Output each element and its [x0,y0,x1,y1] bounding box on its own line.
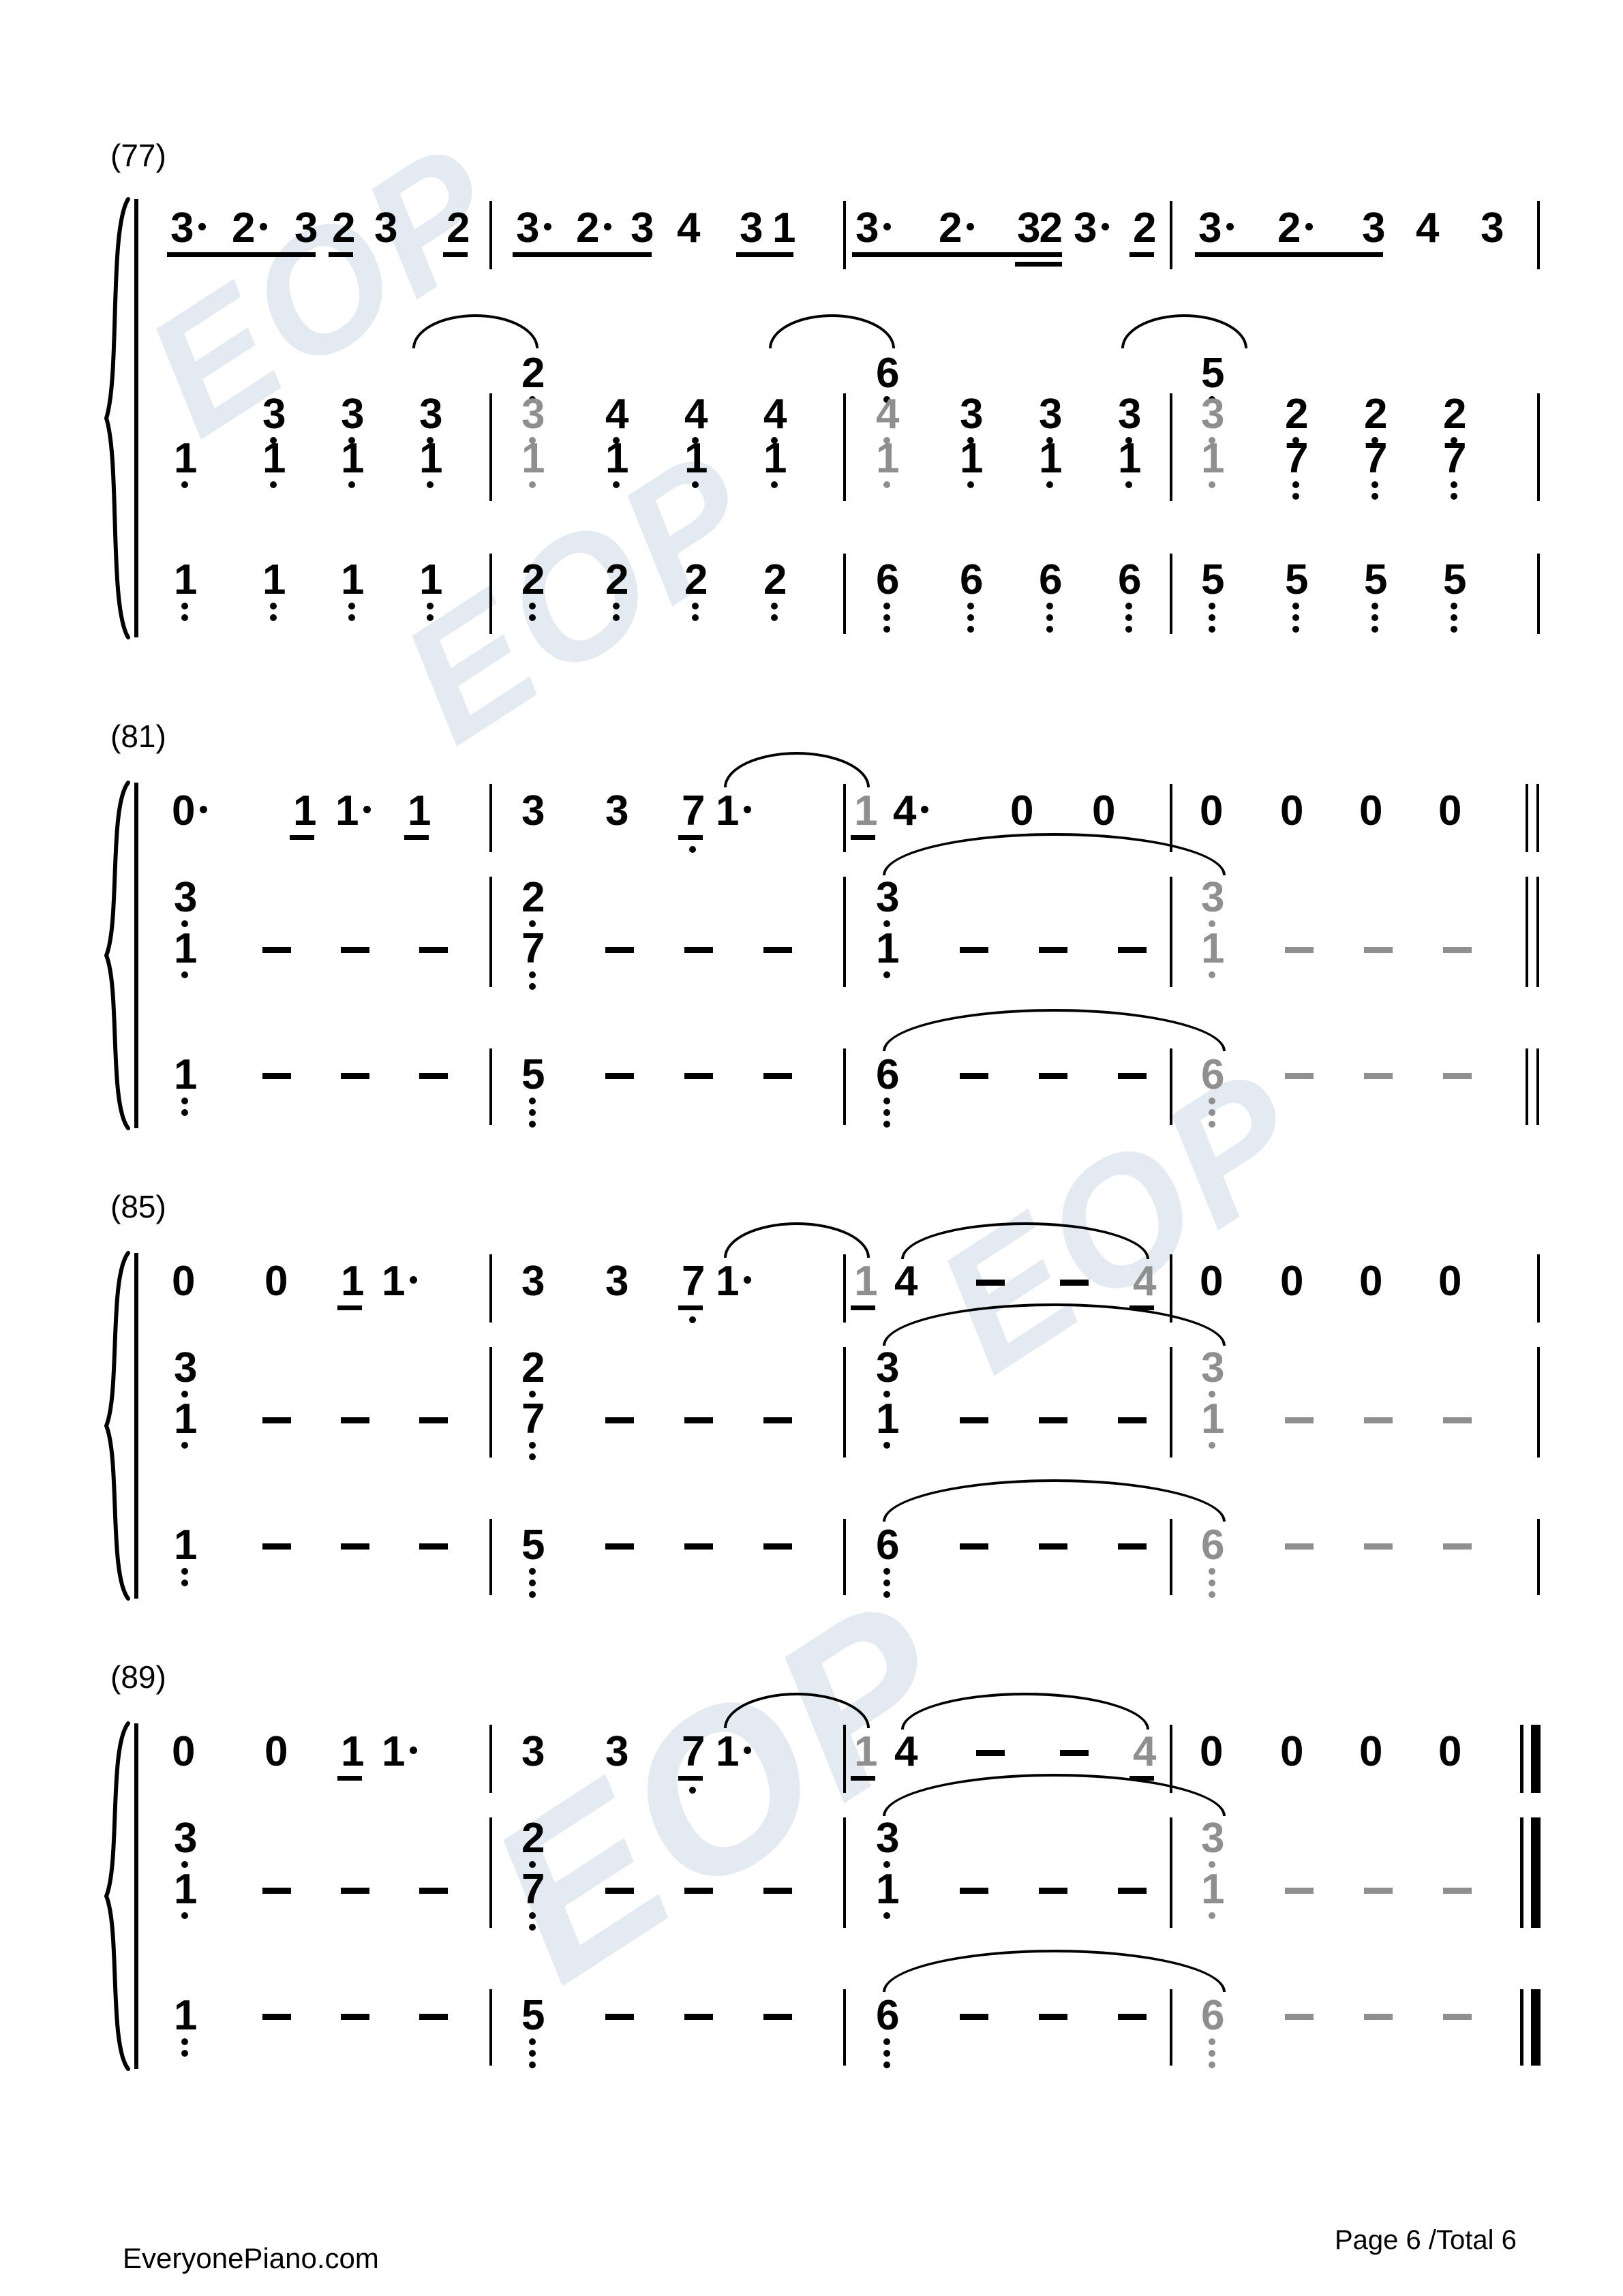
augmentation-dot [200,806,207,813]
barline [843,1519,846,1595]
octave-dot [529,2061,536,2068]
octave-dot [529,1121,536,1128]
sustain-dash [419,1073,448,1079]
octave-dot [1292,614,1299,621]
note-number: 1 [876,1402,898,1436]
sustain-dash [1039,1417,1067,1423]
barline [843,1989,846,2066]
augmentation-dot [198,223,206,230]
note-number: 3 [1198,211,1220,245]
note-number: 3 [960,397,982,432]
octave-dot [181,1098,188,1104]
rest-note: 0 [264,1735,286,1769]
sustain-dash [763,1888,792,1894]
sustain-dash [1364,1888,1393,1894]
note-number: 3 [631,211,652,245]
sustain-dash [262,1073,291,1079]
octave-dot [529,1098,536,1104]
note-number: 2 [332,211,354,245]
sustain-dash [262,2014,291,2020]
octave-dot [1451,603,1457,609]
note-number: 6 [1201,1528,1223,1562]
note-number: 1 [1201,932,1223,966]
augmentation-dot [921,806,928,813]
sustain-dash [1118,947,1147,953]
octave-dot [883,626,890,633]
sustain-dash [684,947,713,953]
note-number: 6 [876,1058,898,1092]
augmentation-dot [410,1747,417,1754]
note-number: 2 [1277,211,1299,245]
sustain-dash [1039,1073,1067,1079]
barline [1170,1048,1172,1125]
note-number: 5 [521,1999,543,2033]
octave-dot [1209,1912,1215,1919]
note-number: 2 [939,211,960,245]
tie-arc [724,752,870,787]
note-number: 1 [382,1265,404,1299]
barline [489,1347,492,1457]
sustain-dash [1118,1417,1147,1423]
sustain-dash [976,1750,1005,1756]
sustain-dash [1364,1543,1393,1550]
rest-note: 0 [264,1265,286,1299]
note-number: 5 [1443,563,1465,597]
sustain-dash [763,1543,792,1550]
note-number: 2 [684,563,706,597]
note-number: 3 [521,1735,543,1769]
augmentation-dot [410,1276,417,1284]
note-number: 1 [1039,442,1061,476]
note-number: 3 [521,397,543,432]
barline [489,1519,492,1595]
system-start-barline [134,199,138,637]
note-number: 1 [716,1265,738,1299]
sustain-dash [1443,1417,1472,1423]
tie-arc [883,833,1226,875]
note-number: 3 [855,211,877,245]
sustain-dash [1039,1888,1067,1894]
note-number: 1 [1201,1402,1223,1436]
augmentation-dot [363,806,371,813]
rest-note: 0 [1200,1735,1222,1769]
augmentation-dot [744,806,751,813]
sustain-dash [1118,2014,1147,2020]
octave-dot [270,603,277,609]
note-number: 3 [876,1351,898,1385]
sustain-dash [341,2014,369,2020]
barline [843,393,846,501]
beam-underline [513,252,652,257]
beam-underline [1129,252,1154,257]
barline [1170,877,1172,987]
note-number: 2 [521,1351,543,1385]
octave-dot [1371,603,1378,609]
octave-dot [883,2050,890,2057]
barline [843,554,846,634]
octave-dot [883,971,890,978]
sustain-dash [1443,1888,1472,1894]
sustain-dash [684,2014,713,2020]
sustain-dash [1285,1543,1314,1550]
note-number: 1 [293,794,315,828]
beam-underline [678,1776,703,1781]
barline [1170,201,1172,269]
octave-dot [967,614,974,621]
note-number: 7 [682,1735,703,1769]
beam-underline [851,835,875,840]
note-number: 4 [876,397,898,432]
note-number: 1 [335,794,357,828]
augmentation-dot [744,1276,751,1284]
note-number: 1 [174,442,196,476]
note-number: 3 [876,881,898,915]
note-number: 2 [605,563,627,597]
sustain-dash [1285,2014,1314,2020]
rest-note: 0 [1280,1735,1302,1769]
octave-dot [529,1580,536,1586]
note-number: 3 [170,211,192,245]
note-number: 7 [521,1873,543,1907]
octave-dot [529,1453,536,1460]
sustain-dash [1364,947,1393,953]
note-number: 3 [341,397,363,432]
octave-dot [1209,1591,1215,1598]
grand-staff-brace [97,1723,138,2069]
note-number: 4 [893,794,915,828]
octave-dot [181,481,188,488]
octave-dot [883,2061,890,2068]
note-number: 1 [262,442,284,476]
rest-note: 0 [1010,794,1032,828]
augmentation-dot [967,223,974,230]
octave-dot [883,1912,890,1919]
note-number: 6 [876,563,898,597]
note-number: 5 [521,1528,543,1562]
beam-underline [404,835,429,840]
note-number: 1 [854,1265,876,1299]
octave-dot [883,1442,890,1449]
note-number: 4 [763,397,785,432]
beam-underline [851,1776,875,1781]
octave-dot [1451,614,1457,621]
octave-dot [1451,493,1457,500]
note-number: 3 [374,211,396,245]
note-number: 1 [341,563,363,597]
octave-dot [883,1568,890,1575]
sustain-dash [1285,947,1314,953]
measure-number-label: (85) [110,1191,166,1222]
grand-staff-brace [97,1253,138,1599]
sustain-dash [684,1073,713,1079]
note-number: 1 [854,1735,876,1769]
sustain-dash [605,1417,634,1423]
tie-arc [1121,314,1247,348]
note-number: 5 [1285,563,1307,597]
note-number: 4 [677,211,699,245]
rest-note: 0 [1438,794,1460,828]
octave-dot [1209,1580,1215,1586]
barline [843,201,846,269]
note-number: 1 [341,1265,363,1299]
system-start-barline [134,1723,138,2069]
octave-dot [348,481,355,488]
beam-underline [852,252,1062,257]
note-number: 4 [684,397,706,432]
note-number: 1 [174,1402,196,1436]
sustain-dash [605,2014,634,2020]
note-number: 1 [1201,1873,1223,1907]
augmentation-dot [544,223,551,230]
sustain-dash [341,947,369,953]
octave-dot [771,481,778,488]
octave-dot [967,603,974,609]
note-number: 6 [876,1999,898,2033]
note-number: 2 [521,357,543,391]
octave-dot [1046,614,1053,621]
note-number: 4 [894,1265,916,1299]
sustain-dash [605,1543,634,1550]
barline [843,1347,846,1457]
augmentation-dot [1102,223,1109,230]
note-number: 3 [262,397,284,432]
watermark-eop: EOP [120,116,528,464]
note-number: 6 [876,1528,898,1562]
barline [843,1725,846,1793]
sustain-dash [1443,2014,1472,2020]
note-number: 3 [419,397,441,432]
note-number: 1 [876,932,898,966]
note-number: 1 [763,442,785,476]
octave-dot [1292,493,1299,500]
rest-note: 0 [1359,1735,1381,1769]
sustain-dash [341,1073,369,1079]
octave-dot [1292,603,1299,609]
beam-underline [1195,252,1383,257]
sustain-dash [1443,947,1472,953]
barline [1537,554,1540,634]
note-number: 4 [894,1735,916,1769]
note-number: 3 [1362,211,1384,245]
note-number: 6 [960,563,982,597]
note-number: 2 [521,881,543,915]
tie-arc [883,1950,1226,1992]
octave-dot [181,614,188,621]
note-number: 3 [521,794,543,828]
barline [843,877,846,987]
octave-dot [1209,2050,1215,2057]
watermark-eop: EOP [910,1040,1334,1401]
octave-dot [1125,626,1132,633]
barline [1170,1347,1172,1457]
octave-dot [427,481,434,488]
measure-number-label: (81) [110,721,166,752]
barline [1170,1519,1172,1595]
footer-site-text: EveryonePiano.com [123,2244,379,2273]
octave-dot [883,1121,890,1128]
note-number: 1 [772,211,794,245]
sheet-music-page: EveryonePiano.com Page 6 /Total 6 EOPEOP… [0,0,1623,2296]
note-number: 7 [1364,442,1386,476]
sustain-dash [1118,1073,1147,1079]
octave-dot [529,1591,536,1598]
footer-page-indicator: Page 6 /Total 6 [1335,2226,1517,2254]
note-number: 4 [605,397,627,432]
note-number: 3 [174,881,196,915]
barline [1537,393,1540,501]
note-number: 6 [876,357,898,391]
barline [843,784,846,852]
sustain-dash [960,947,988,953]
barline [1526,877,1528,987]
octave-dot [1125,614,1132,621]
octave-dot [1371,626,1378,633]
sustain-dash [684,1417,713,1423]
augmentation-dot [883,223,891,230]
octave-dot [529,2038,536,2045]
note-number: 1 [341,442,363,476]
barline [1536,877,1539,987]
sustain-dash [976,1280,1005,1286]
octave-dot [348,603,355,609]
barline [1170,784,1172,852]
octave-dot [1371,481,1378,488]
octave-dot [883,1580,890,1586]
note-number: 2 [521,563,543,597]
note-number: 3 [1074,211,1095,245]
barline [1170,1817,1172,1928]
barline [1531,1989,1541,2066]
beam-underline [167,252,316,257]
beam-underline [337,1305,362,1310]
octave-dot [1209,603,1215,609]
note-number: 7 [682,794,703,828]
beam-underline [678,1305,703,1310]
octave-dot [1209,1568,1215,1575]
octave-dot [883,1098,890,1104]
barline [489,201,492,269]
note-number: 3 [1039,397,1061,432]
note-number: 1 [876,442,898,476]
note-number: 3 [516,211,538,245]
note-number: 3 [1118,397,1140,432]
rest-note: 0 [1438,1265,1460,1299]
barline [489,877,492,987]
augmentation-dot [1305,223,1313,230]
sustain-dash [684,1543,713,1550]
barline [1537,1254,1540,1323]
octave-dot [1451,626,1457,633]
octave-dot [1292,481,1299,488]
note-number: 1 [341,1735,363,1769]
note-number: 1 [684,442,706,476]
barline [489,1725,492,1793]
rest-note: 0 [172,1265,194,1299]
note-number: 7 [1443,442,1465,476]
sustain-dash [1060,1750,1089,1756]
sustain-dash [419,1543,448,1550]
note-number: 1 [854,794,876,828]
note-number: 1 [174,1528,196,1562]
sustain-dash [341,1888,369,1894]
note-number: 1 [382,1735,404,1769]
barline [489,1254,492,1323]
octave-dot [1371,493,1378,500]
barline [843,1048,846,1125]
barline [1520,1725,1523,1793]
note-number: 2 [1133,211,1155,245]
note-number: 1 [174,1873,196,1907]
sustain-dash [262,947,291,953]
note-number: 1 [174,1058,196,1092]
barline [1536,784,1539,852]
octave-dot [181,1580,188,1586]
tie-arc [724,1222,870,1258]
octave-dot [1209,971,1215,978]
sustain-dash [684,1888,713,1894]
rest-note: 0 [1280,794,1302,828]
sustain-dash [960,1888,988,1894]
note-number: 1 [1201,442,1223,476]
beam-underline [678,835,703,840]
rest-note: 0 [1200,1265,1222,1299]
beam-underline [1015,262,1062,267]
barline [1536,1048,1539,1125]
octave-dot [883,1109,890,1116]
note-number: 5 [1364,563,1386,597]
sustain-dash [1285,1417,1314,1423]
octave-dot [270,481,277,488]
sustain-dash [1285,1888,1314,1894]
sustain-dash [419,2014,448,2020]
note-number: 5 [1201,357,1223,391]
note-number: 1 [521,442,543,476]
note-number: 1 [605,442,627,476]
note-number: 6 [1039,563,1061,597]
sustain-dash [262,1888,291,1894]
octave-dot [529,1568,536,1575]
sustain-dash [1364,1417,1393,1423]
note-number: 2 [576,211,598,245]
note-number: 7 [521,1402,543,1436]
octave-dot [1292,626,1299,633]
note-number: 2 [446,211,468,245]
octave-dot [1046,626,1053,633]
note-number: 1 [716,1735,738,1769]
sustain-dash [419,1417,448,1423]
note-number: 6 [1201,1058,1223,1092]
note-number: 2 [232,211,254,245]
octave-dot [529,971,536,978]
barline [1170,554,1172,634]
octave-dot [181,2038,188,2045]
octave-dot [1209,626,1215,633]
note-number: 7 [1285,442,1307,476]
note-number: 4 [1416,211,1438,245]
rest-note: 0 [1092,794,1114,828]
octave-dot [689,846,696,853]
sustain-dash [262,1417,291,1423]
barline [489,784,492,852]
sustain-dash [1039,2014,1067,2020]
barline [1531,1817,1541,1928]
rest-note: 0 [1280,1265,1302,1299]
sustain-dash [1118,1543,1147,1550]
sustain-dash [763,947,792,953]
sustain-dash [341,1417,369,1423]
sustain-dash [605,1073,634,1079]
octave-dot [1046,603,1053,609]
